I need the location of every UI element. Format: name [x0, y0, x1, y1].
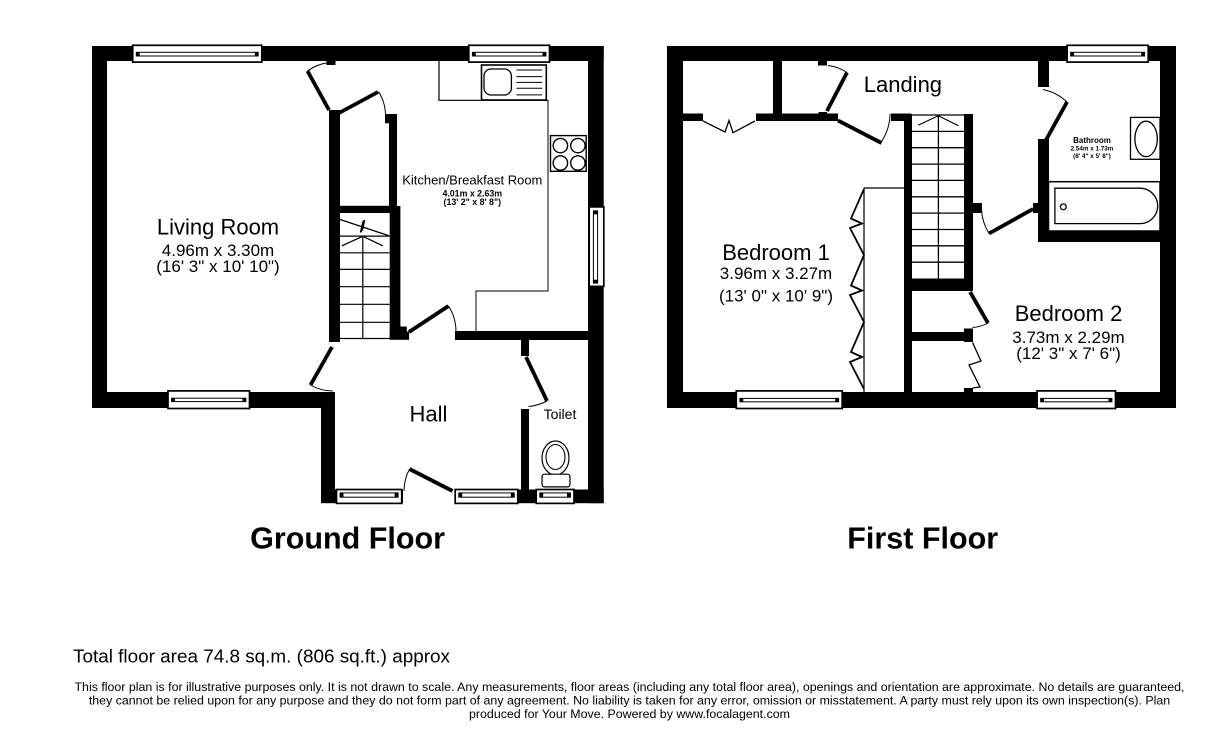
svg-text:(16' 3" x 10' 10"): (16' 3" x 10' 10") [156, 257, 279, 276]
svg-text:2.54m x 1.73m: 2.54m x 1.73m [1071, 146, 1114, 153]
svg-text:(12' 3" x 7' 6"): (12' 3" x 7' 6") [1016, 344, 1121, 363]
svg-text:they cannot be relied upon for: they cannot be relied upon for any purpo… [89, 694, 1170, 708]
svg-text:Total floor area 74.8 sq.m. (8: Total floor area 74.8 sq.m. (806 sq.ft.)… [73, 647, 451, 668]
svg-text:Bathroom: Bathroom [1073, 136, 1111, 145]
svg-text:(13' 0" x 10' 9"): (13' 0" x 10' 9") [719, 287, 833, 306]
svg-text:Ground Floor: Ground Floor [250, 522, 445, 556]
svg-text:Bedroom 2: Bedroom 2 [1015, 301, 1123, 326]
svg-text:Toilet: Toilet [544, 406, 577, 422]
svg-text:First Floor: First Floor [847, 522, 998, 556]
svg-text:This floor plan is for illustr: This floor plan is for illustrative purp… [74, 680, 1184, 694]
svg-text:Living Room: Living Room [157, 215, 279, 240]
svg-text:Landing: Landing [864, 72, 942, 97]
svg-text:Hall: Hall [410, 401, 448, 426]
svg-text:(8' 4" x 5' 8"): (8' 4" x 5' 8") [1073, 153, 1111, 160]
svg-text:produced for Your Move. Powere: produced for Your Move. Powered by www.f… [469, 707, 790, 721]
svg-text:Kitchen/Breakfast Room: Kitchen/Breakfast Room [402, 172, 542, 187]
svg-text:(13' 2" x 8' 8"): (13' 2" x 8' 8") [444, 197, 502, 207]
svg-text:3.96m x 3.27m: 3.96m x 3.27m [720, 264, 832, 283]
svg-text:Bedroom 1: Bedroom 1 [722, 240, 830, 265]
